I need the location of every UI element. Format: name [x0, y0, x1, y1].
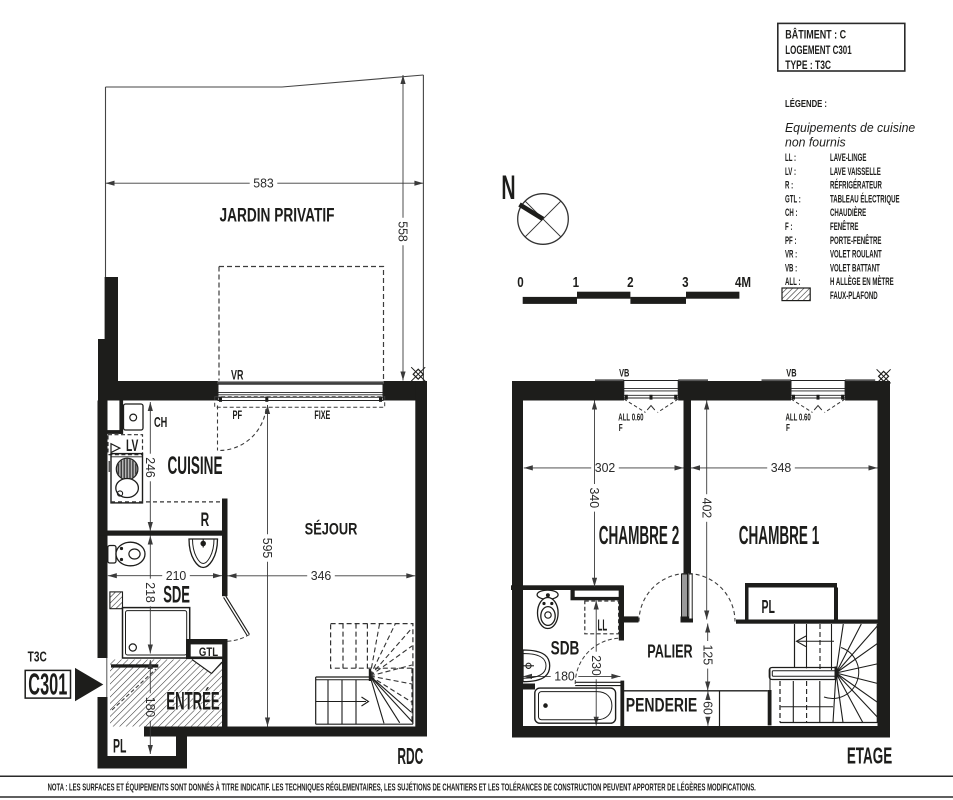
svg-text:1: 1: [573, 274, 579, 291]
svg-text:218: 218: [143, 582, 157, 603]
svg-text:302: 302: [595, 461, 616, 475]
svg-text:N: N: [501, 168, 515, 206]
svg-text:T3C: T3C: [28, 649, 47, 665]
svg-text:402: 402: [699, 498, 713, 519]
svg-text:PORTE-FENÊTRE: PORTE-FENÊTRE: [830, 233, 881, 247]
svg-text:PENDERIE: PENDERIE: [626, 694, 698, 716]
svg-text:CHAUDIÈRE: CHAUDIÈRE: [830, 206, 866, 218]
svg-text:GTL :: GTL :: [785, 193, 801, 205]
svg-text:210: 210: [166, 569, 187, 583]
svg-text:SDB: SDB: [551, 637, 580, 659]
svg-text:C301: C301: [28, 668, 67, 702]
svg-text:CUISINE: CUISINE: [168, 453, 223, 480]
svg-text:CH: CH: [154, 414, 167, 431]
svg-text:ALL :: ALL :: [785, 275, 800, 287]
svg-text:LÉGENDE :: LÉGENDE :: [785, 98, 827, 109]
svg-text:FENÊTRE: FENÊTRE: [830, 219, 858, 233]
svg-text:595: 595: [260, 538, 274, 559]
svg-text:CHAMBRE 2: CHAMBRE 2: [599, 523, 680, 550]
svg-text:PF: PF: [233, 409, 243, 422]
svg-text:LAVE VAISSELLE: LAVE VAISSELLE: [830, 165, 881, 177]
svg-text:LV :: LV :: [785, 165, 796, 177]
svg-text:2: 2: [627, 274, 633, 291]
svg-text:RDC: RDC: [397, 743, 423, 769]
svg-text:VB: VB: [786, 367, 796, 380]
svg-text:BÂTIMENT : C: BÂTIMENT : C: [785, 27, 846, 42]
svg-text:60: 60: [700, 701, 714, 715]
svg-text:FIXE: FIXE: [314, 409, 330, 422]
svg-text:GTL: GTL: [199, 646, 218, 659]
svg-text:230: 230: [589, 655, 603, 676]
svg-text:F: F: [619, 421, 623, 433]
svg-text:TABLEAU ÉLECTRIQUE: TABLEAU ÉLECTRIQUE: [830, 193, 900, 205]
svg-text:ENTRÉE: ENTRÉE: [166, 687, 219, 716]
svg-text:VR: VR: [231, 369, 244, 383]
svg-text:180: 180: [554, 669, 575, 683]
svg-text:F: F: [786, 421, 790, 433]
svg-text:R :: R :: [785, 179, 793, 191]
svg-text:LAVE-LINGE: LAVE-LINGE: [830, 151, 866, 163]
svg-text:LL :: LL :: [785, 151, 796, 163]
svg-text:VOLET ROULANT: VOLET ROULANT: [830, 248, 882, 260]
svg-text:NOTA : LES SURFACES ET ÉQUIPEM: NOTA : LES SURFACES ET ÉQUIPEMENTS SONT …: [48, 781, 756, 793]
svg-text:VOLET BATTANT: VOLET BATTANT: [830, 262, 880, 274]
svg-text:FAUX-PLAFOND: FAUX-PLAFOND: [830, 289, 878, 301]
svg-text:348: 348: [771, 461, 792, 475]
svg-text:LV: LV: [126, 435, 139, 454]
svg-text:PF :: PF :: [785, 234, 797, 246]
svg-text:SDE: SDE: [163, 583, 190, 609]
svg-text:LOGEMENT C301: LOGEMENT C301: [785, 44, 852, 57]
svg-text:F :: F :: [785, 220, 792, 232]
svg-text:LL: LL: [598, 617, 608, 635]
svg-text:PALIER: PALIER: [647, 643, 692, 663]
svg-text:246: 246: [143, 457, 157, 478]
svg-text:R: R: [201, 510, 210, 530]
svg-text:4M: 4M: [735, 274, 751, 291]
svg-text:VB :: VB :: [785, 262, 797, 274]
svg-text:CH :: CH :: [785, 206, 798, 218]
svg-text:non fournis: non fournis: [785, 134, 846, 150]
svg-text:180: 180: [143, 697, 157, 718]
svg-text:JARDIN PRIVATIF: JARDIN PRIVATIF: [219, 204, 334, 226]
svg-text:3: 3: [682, 274, 688, 291]
svg-text:CHAMBRE 1: CHAMBRE 1: [739, 523, 820, 550]
svg-text:558: 558: [396, 221, 410, 242]
svg-text:PL: PL: [762, 597, 775, 618]
svg-text:SÉJOUR: SÉJOUR: [305, 520, 358, 539]
svg-text:340: 340: [587, 488, 601, 509]
svg-text:0: 0: [517, 274, 523, 291]
svg-text:346: 346: [311, 569, 332, 583]
svg-text:PL: PL: [113, 736, 126, 757]
svg-text:VB: VB: [619, 367, 629, 380]
svg-text:125: 125: [700, 645, 714, 666]
svg-text:H ALLÈGE EN MÈTRE: H ALLÈGE EN MÈTRE: [830, 275, 894, 287]
svg-text:TYPE : T3C: TYPE : T3C: [785, 60, 831, 73]
svg-text:583: 583: [253, 176, 274, 190]
svg-text:RÉFRIGÉRATEUR: RÉFRIGÉRATEUR: [830, 179, 882, 191]
svg-text:VR :: VR :: [785, 248, 797, 260]
svg-text:Equipements de cuisine: Equipements de cuisine: [785, 120, 915, 136]
svg-text:ETAGE: ETAGE: [847, 744, 892, 770]
